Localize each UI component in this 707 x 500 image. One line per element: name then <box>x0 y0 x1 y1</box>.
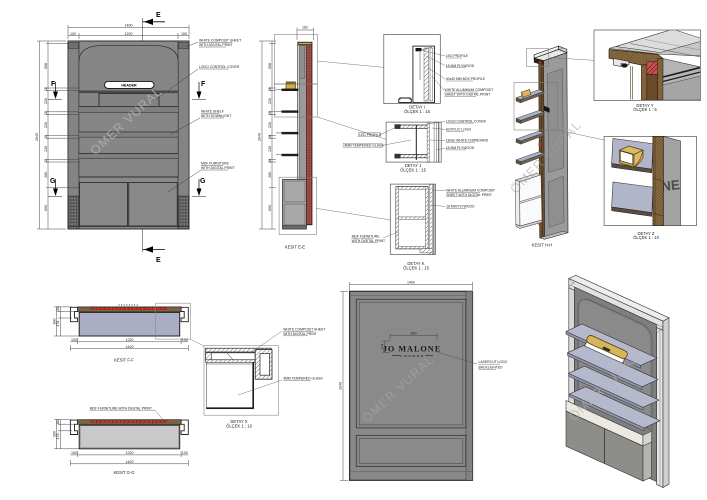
svg-text:SHEET WITH DIGITAL PRINT: SHEET WITH DIGITAL PRINT <box>445 93 491 97</box>
svg-text:2040: 2040 <box>258 133 262 141</box>
svg-text:100: 100 <box>181 32 187 36</box>
svg-text:18 MM PLYWOOD: 18 MM PLYWOOD <box>446 146 475 150</box>
svg-text:BACKLIGHTED: BACKLIGHTED <box>479 365 503 369</box>
svg-text:G: G <box>50 178 56 185</box>
svg-text:JO MALONE: JO MALONE <box>383 345 441 354</box>
svg-text:100: 100 <box>70 32 76 36</box>
svg-text:ÖLÇEK 1 : 5: ÖLÇEK 1 : 5 <box>633 107 657 112</box>
svg-text:28: 28 <box>44 159 48 163</box>
svg-text:508: 508 <box>44 63 48 69</box>
svg-text:WHITE SHELF: WHITE SHELF <box>201 110 224 114</box>
svg-text:LOGO CONTROL COVER: LOGO CONTROL COVER <box>199 65 240 69</box>
svg-text:LED PROFILE: LED PROFILE <box>359 133 382 137</box>
svg-text:LASERCUT LOGO: LASERCUT LOGO <box>479 360 508 364</box>
svg-text:280: 280 <box>44 172 48 178</box>
svg-text:2040: 2040 <box>339 382 343 390</box>
svg-text:100: 100 <box>182 338 188 342</box>
svg-text:MDF FURNITURE: MDF FURNITURE <box>352 234 381 238</box>
svg-text:600: 600 <box>411 332 417 336</box>
svg-text:18 MM PLYWOOD: 18 MM PLYWOOD <box>446 64 475 68</box>
svg-text:ÖLÇEK 1 : 15: ÖLÇEK 1 : 15 <box>400 167 427 172</box>
svg-text:WHITE ALUMINUM COMPOSIT: WHITE ALUMINUM COMPOSIT <box>445 88 494 92</box>
svg-text:WITH DIGITAL PRINT: WITH DIGITAL PRINT <box>201 166 235 170</box>
svg-text:28: 28 <box>44 135 48 139</box>
svg-text:1420: 1420 <box>126 460 134 464</box>
svg-text:WITH DIGITAL PRINT: WITH DIGITAL PRINT <box>283 332 317 336</box>
svg-text:28: 28 <box>268 135 272 139</box>
svg-text:WHITE COMPOSIT SHEET: WHITE COMPOSIT SHEET <box>199 39 241 43</box>
svg-text:508: 508 <box>268 63 272 69</box>
svg-text:1400: 1400 <box>125 24 133 28</box>
svg-text:ÖLÇEK 1 : 15: ÖLÇEK 1 : 15 <box>404 109 431 114</box>
svg-text:28: 28 <box>268 111 272 115</box>
svg-text:KESIT H-H: KESIT H-H <box>532 243 553 248</box>
svg-text:28: 28 <box>44 87 48 91</box>
svg-text:178: 178 <box>56 321 60 327</box>
svg-text:WITH DIGITAL PRINT: WITH DIGITAL PRINT <box>352 239 386 243</box>
svg-text:WHITE COMPOSIT SHEET: WHITE COMPOSIT SHEET <box>283 328 325 332</box>
svg-text:178: 178 <box>56 434 60 440</box>
svg-text:4MM TEMPERED GLASS: 4MM TEMPERED GLASS <box>283 377 323 381</box>
svg-text:230: 230 <box>44 122 48 128</box>
svg-text:KESIT G-G: KESIT G-G <box>113 470 134 475</box>
svg-text:18mm WHITE CHIPBOARD: 18mm WHITE CHIPBOARD <box>446 138 489 142</box>
svg-text:ACRYLIC LOGO: ACRYLIC LOGO <box>446 128 472 132</box>
svg-text:230: 230 <box>268 146 272 152</box>
svg-text:4MM TEMPERED GLASS: 4MM TEMPERED GLASS <box>344 144 384 148</box>
svg-text:1400: 1400 <box>407 281 415 285</box>
svg-text:1220: 1220 <box>125 32 133 36</box>
svg-text:2040: 2040 <box>35 133 39 141</box>
svg-text:SHEET WITH DIGITAL PRINT: SHEET WITH DIGITAL PRINT <box>446 193 492 197</box>
svg-text:230: 230 <box>268 98 272 104</box>
svg-text:MDF FURNITURE WITH DIGITAL PRI: MDF FURNITURE WITH DIGITAL PRINT <box>90 406 152 410</box>
svg-text:F: F <box>201 81 206 88</box>
svg-text:40x40 MM BOX PROFILE: 40x40 MM BOX PROFILE <box>446 77 486 81</box>
svg-text:230: 230 <box>44 98 48 104</box>
svg-text:600: 600 <box>44 205 48 211</box>
svg-text:E: E <box>156 257 161 264</box>
svg-text:WITH DIGITAL PRINT: WITH DIGITAL PRINT <box>199 43 233 47</box>
svg-text:HEADER: HEADER <box>121 84 137 88</box>
svg-text:230: 230 <box>268 122 272 128</box>
svg-text:WHITE ALUMINUM COMPOSIT: WHITE ALUMINUM COMPOSIT <box>446 189 495 193</box>
svg-text:280: 280 <box>268 172 272 178</box>
svg-text:162: 162 <box>302 26 308 30</box>
svg-text:ÖLÇEK 1 : 10: ÖLÇEK 1 : 10 <box>226 423 253 428</box>
svg-text:1420: 1420 <box>126 345 134 349</box>
svg-text:LOGO CONTROL COVER: LOGO CONTROL COVER <box>446 119 487 123</box>
svg-text:100: 100 <box>182 451 188 455</box>
svg-text:100: 100 <box>71 338 77 342</box>
svg-text:18 MM PLYWOOD: 18 MM PLYWOOD <box>446 205 475 209</box>
svg-text:LED PROFILE: LED PROFILE <box>446 54 469 58</box>
svg-text:WITH DOWNLIGHT: WITH DOWNLIGHT <box>201 114 231 118</box>
svg-text:100: 100 <box>71 451 77 455</box>
svg-text:162: 162 <box>56 306 60 312</box>
svg-text:162: 162 <box>56 419 60 425</box>
svg-text:28: 28 <box>268 159 272 163</box>
svg-text:230: 230 <box>44 146 48 152</box>
svg-text:1220: 1220 <box>126 451 134 455</box>
svg-text:600: 600 <box>268 205 272 211</box>
svg-text:ÖLÇEK 1 : 15: ÖLÇEK 1 : 15 <box>403 265 430 270</box>
svg-text:28: 28 <box>44 111 48 115</box>
svg-text:KESIT E-E: KESIT E-E <box>285 245 305 250</box>
svg-text:KESIT F-F: KESIT F-F <box>114 358 134 363</box>
svg-text:28: 28 <box>268 87 272 91</box>
svg-text:ÖLÇEK 1 : 10: ÖLÇEK 1 : 10 <box>633 235 660 240</box>
svg-text:E: E <box>156 12 161 19</box>
svg-text:MDF FURNITURE: MDF FURNITURE <box>201 162 230 166</box>
svg-text:G: G <box>200 178 206 185</box>
svg-text:1220: 1220 <box>126 338 134 342</box>
